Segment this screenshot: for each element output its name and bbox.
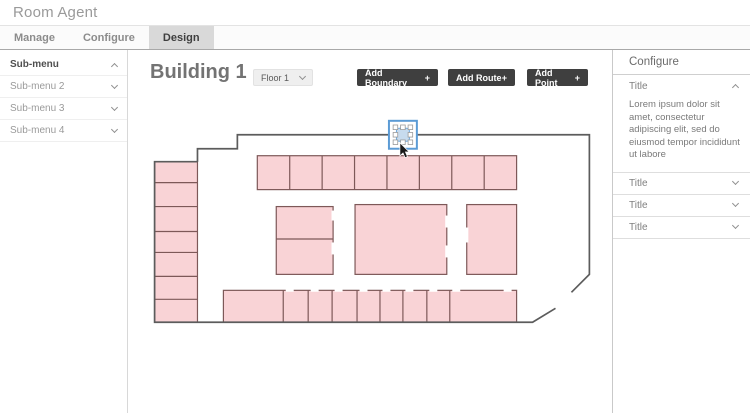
chevron-down-icon <box>111 103 118 110</box>
accordion-label: Title <box>629 222 648 233</box>
room-block-middle-right[interactable] <box>465 205 516 275</box>
room-block-middle-center[interactable] <box>355 205 448 275</box>
room-block-middle-left[interactable] <box>276 207 334 275</box>
tab-design[interactable]: Design <box>149 26 214 49</box>
sidebar-item-submenu-1[interactable]: Sub-menu <box>0 54 127 76</box>
accordion-label: Title <box>629 178 648 189</box>
accordion-header-title-3[interactable]: Title <box>613 195 750 217</box>
tab-manage[interactable]: Manage <box>0 26 69 49</box>
accordion-section-expanded: Title Lorem ipsum dolor sit amet, consec… <box>613 75 750 173</box>
chevron-down-icon <box>299 72 306 79</box>
plus-icon: + <box>425 73 430 83</box>
accordion-body-text: Lorem ipsum dolor sit amet, consectetur … <box>613 97 750 172</box>
chevron-down-icon <box>111 81 118 88</box>
chevron-up-icon <box>732 84 739 91</box>
chevron-down-icon <box>732 178 739 185</box>
sidebar-item-submenu-4[interactable]: Sub-menu 4 <box>0 120 127 142</box>
accordion-header-title-4[interactable]: Title <box>613 217 750 239</box>
tab-bar: Manage Configure Design <box>0 26 750 50</box>
sidebar-item-label: Sub-menu 2 <box>10 81 64 92</box>
button-label: Add Point <box>535 68 575 88</box>
add-point-button[interactable]: Add Point + <box>527 69 588 86</box>
chevron-down-icon <box>732 200 739 207</box>
design-canvas: Building 1 Floor 1 Add Boundary + Add Ro… <box>128 50 612 413</box>
sidebar-item-label: Sub-menu 4 <box>10 125 64 136</box>
floor-dropdown-value: Floor 1 <box>261 73 289 83</box>
floor-plan <box>128 50 612 413</box>
plus-icon: + <box>575 73 580 83</box>
add-route-button[interactable]: Add Route + <box>448 69 515 86</box>
app-title: Room Agent <box>13 4 98 21</box>
room-stack-left[interactable] <box>155 162 198 323</box>
accordion-header-title[interactable]: Title <box>613 75 750 97</box>
floor-dropdown[interactable]: Floor 1 <box>253 69 313 86</box>
button-label: Add Boundary <box>365 68 425 88</box>
app-header: Room Agent <box>0 0 750 26</box>
chevron-up-icon <box>111 62 118 69</box>
chevron-down-icon <box>111 125 118 132</box>
plus-icon: + <box>502 73 507 83</box>
sidebar-item-submenu-3[interactable]: Sub-menu 3 <box>0 98 127 120</box>
configure-panel: Configure Title Lorem ipsum dolor sit am… <box>612 50 750 413</box>
accordion-header-title-2[interactable]: Title <box>613 173 750 195</box>
accordion-label: Title <box>629 200 648 211</box>
room-row-bottom[interactable] <box>223 289 516 322</box>
room-row-top[interactable] <box>257 156 516 190</box>
add-boundary-button[interactable]: Add Boundary + <box>357 69 438 86</box>
sidebar-item-label: Sub-menu 3 <box>10 103 64 114</box>
button-label: Add Route <box>456 73 502 83</box>
sidebar-item-submenu-2[interactable]: Sub-menu 2 <box>0 76 127 98</box>
configure-panel-title: Configure <box>613 50 750 75</box>
selected-point-object[interactable] <box>389 121 417 149</box>
chevron-down-icon <box>732 222 739 229</box>
tab-configure[interactable]: Configure <box>69 26 149 49</box>
building-title: Building 1 <box>150 61 247 84</box>
left-sidebar: Sub-menu Sub-menu 2 Sub-menu 3 Sub-menu … <box>0 50 128 413</box>
accordion-label: Title <box>629 81 648 92</box>
sidebar-item-label: Sub-menu <box>10 59 59 70</box>
